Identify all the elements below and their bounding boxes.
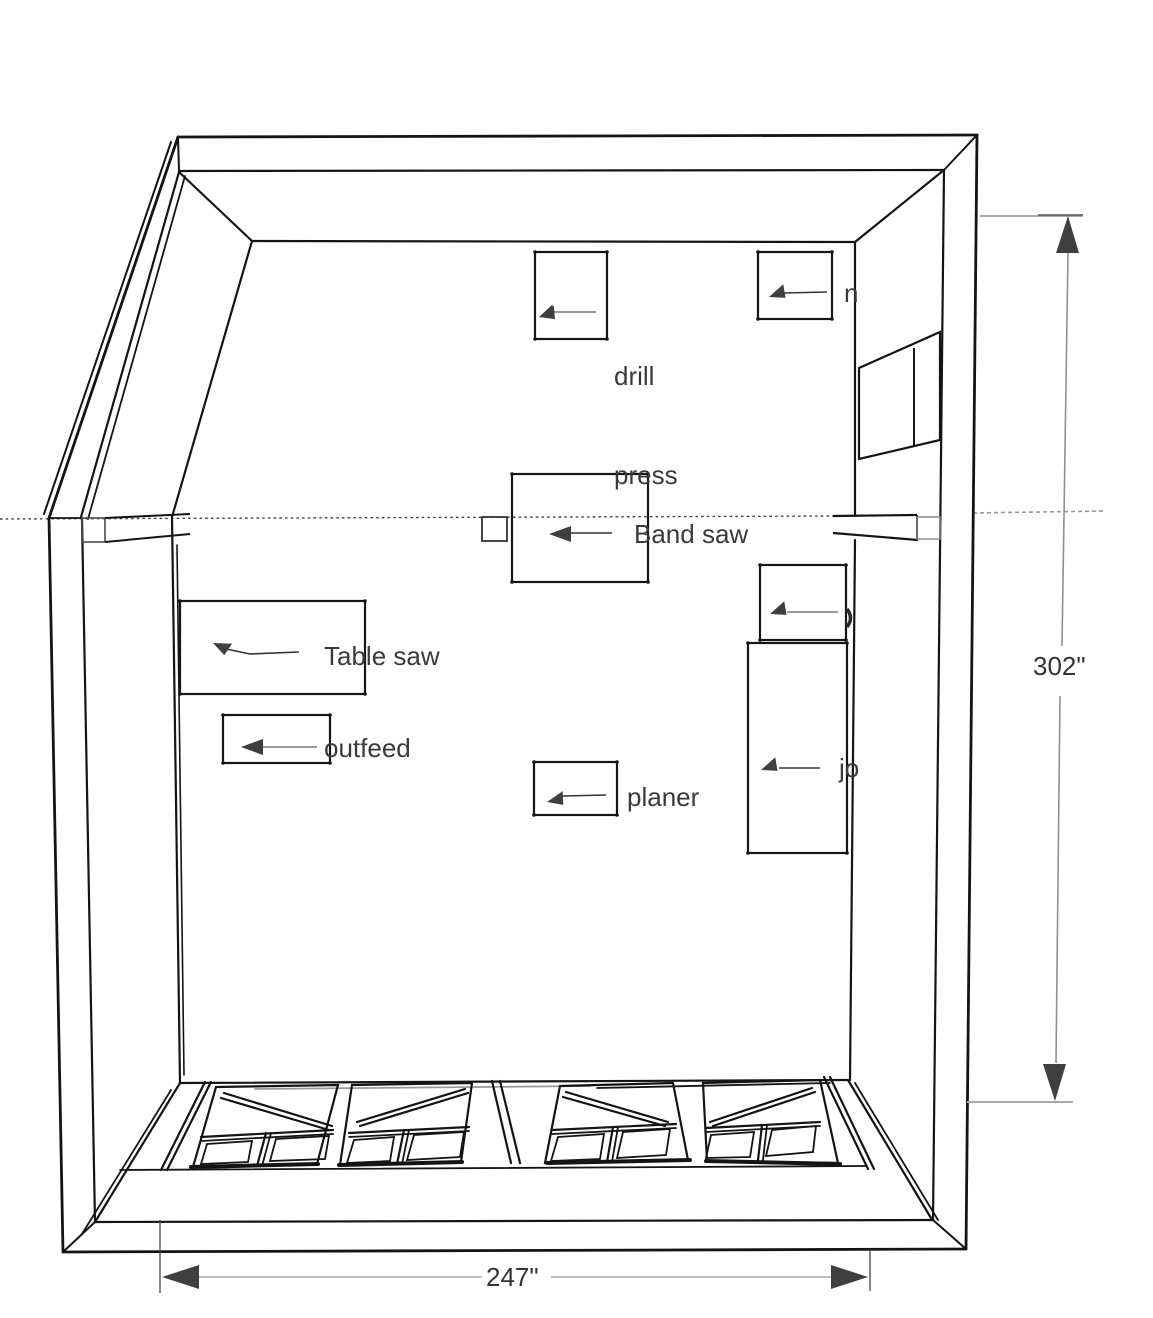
unknown-machine-label-fragment: n (844, 277, 858, 310)
right-wall-window (859, 332, 940, 459)
outfeed-arrow (241, 739, 263, 755)
table-saw-arrow (210, 637, 232, 656)
band-saw-label: Band saw (634, 518, 748, 551)
drill-press-footprint (535, 252, 607, 339)
left-wall-doorway (82, 514, 190, 542)
garage-door-center-post (492, 1081, 520, 1163)
vertical-dimension-label: 302" (1033, 650, 1086, 683)
dim-arrow-up (1056, 216, 1079, 253)
horizontal-dimension-label: 247" (486, 1261, 539, 1294)
garage-door-panel-2 (339, 1083, 472, 1165)
drill-press-label-line2: press (614, 459, 678, 492)
jointer-footprint (748, 643, 847, 853)
outfeed-footprint (223, 715, 330, 763)
unknown-machine-footprint (758, 252, 832, 319)
small-square-footprint (482, 517, 507, 541)
table-saw-leader (226, 649, 299, 654)
label-leaders (210, 284, 850, 809)
band-saw-arrow (549, 526, 571, 542)
planer-footprint (534, 762, 617, 815)
outfeed-label: outfeed (324, 732, 411, 765)
planer-label: planer (627, 781, 699, 814)
clipped-label-fragment (847, 609, 851, 627)
right-door-jamb (824, 1077, 874, 1169)
machines (178, 250, 849, 855)
small-right-machine-footprint (760, 565, 846, 640)
inner-wall-lines (82, 170, 944, 1234)
planer-leader (563, 795, 606, 796)
unknown-machine-leader (783, 292, 827, 293)
dim-arrow-right (831, 1265, 868, 1289)
right-wall-doorway (833, 515, 940, 540)
small-right-machine-arrow (768, 601, 790, 620)
garage-door-panel-3 (545, 1083, 690, 1163)
garage-door-panel-1 (191, 1085, 338, 1167)
garage-doors (120, 1077, 874, 1170)
garage-door-panel-4 (703, 1080, 840, 1164)
drill-press-label-line1: drill (614, 360, 678, 393)
unknown-machine-arrow (767, 284, 789, 303)
jointer-arrow (759, 757, 781, 776)
table-saw-label: Table saw (324, 640, 440, 673)
jointer-label-fragment: jo (839, 752, 859, 785)
dim-arrow-down (1043, 1064, 1066, 1101)
floor-plan-drawing (0, 0, 1153, 1318)
planer-arrow (545, 791, 566, 809)
floor-plan-canvas: drill press n Band saw Table saw outfeed… (0, 0, 1153, 1318)
dim-arrow-left (162, 1265, 199, 1289)
